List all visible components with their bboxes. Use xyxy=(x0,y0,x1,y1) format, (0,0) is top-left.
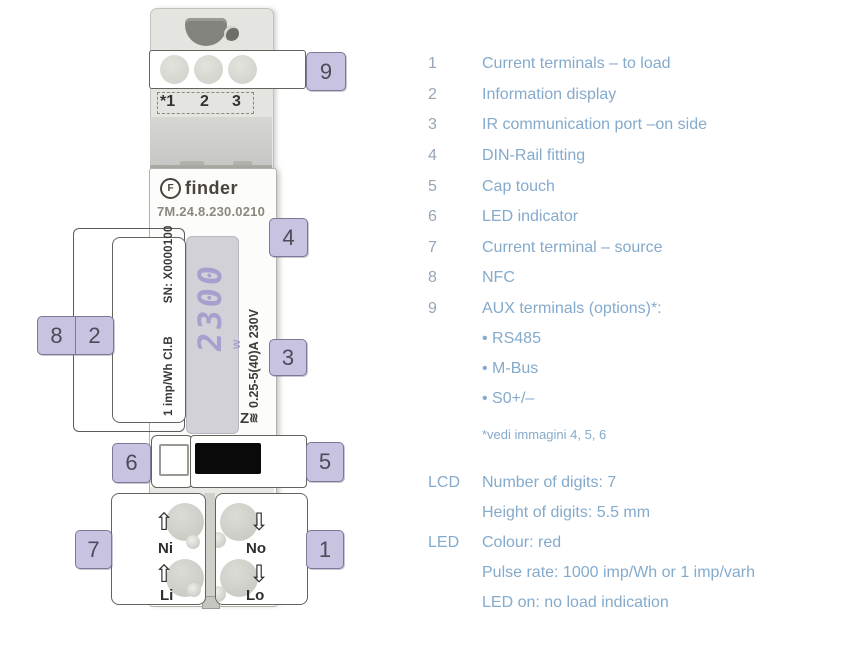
legend-item: 3 IR communication port –on side xyxy=(428,110,848,141)
legend-item: 2 Information display xyxy=(428,80,848,111)
legend-item: 5 Cap touch xyxy=(428,171,848,202)
flow-up-icon: ⇧ xyxy=(154,512,174,534)
callout-2: 2 xyxy=(76,317,113,354)
aux-terminal-number-1: *1 xyxy=(160,93,175,111)
terminal-screw xyxy=(186,535,200,549)
legend-label: NFC xyxy=(482,269,515,287)
device-top-screw-icon xyxy=(224,26,239,41)
legend-item: 9 AUX terminals (options)*: xyxy=(428,294,848,325)
spec-row: Height of digits: 5.5 mm xyxy=(428,498,848,528)
callout-4: 4 xyxy=(269,218,308,257)
legend-number: 8 xyxy=(428,269,482,287)
lcd-reading: 2300 xyxy=(191,261,229,354)
ir-waves-icon: ≋ xyxy=(246,413,262,424)
spec-text: Colour: red xyxy=(482,534,561,552)
legend-label: Current terminals – to load xyxy=(482,55,671,73)
legend-label: Cap touch xyxy=(482,178,555,196)
led-indicator-highlight xyxy=(151,435,193,488)
brand-row: F finder xyxy=(160,178,264,198)
aux-option-rs485: • RS485 xyxy=(428,324,848,354)
legend-label: Information display xyxy=(482,86,616,104)
legend-number: 7 xyxy=(428,239,482,257)
spec-label: LCD xyxy=(428,474,482,492)
legend-item: 8 NFC xyxy=(428,263,848,294)
legend-label: AUX terminals (options)*: xyxy=(482,300,662,318)
aux-option-s0: • S0+/– xyxy=(428,384,848,414)
spec-text: Number of digits: 7 xyxy=(482,474,616,492)
legend: 1 Current terminals – to load 2 Informat… xyxy=(428,49,848,618)
pulse-class-label: 1 imp/Wh Cl.B xyxy=(163,336,175,416)
legend-number: 6 xyxy=(428,208,482,226)
terminal-label-no: No xyxy=(246,540,266,557)
meter-side-printing: 1 imp/Wh Cl.B SN: X0000100 xyxy=(163,246,175,416)
aux-option-mbus: • M-Bus xyxy=(428,354,848,384)
spec-row: Pulse rate: 1000 imp/Wh or 1 imp/varh xyxy=(428,558,848,588)
aux-terminal-hole xyxy=(228,55,257,84)
finder-logo-icon: F xyxy=(160,178,181,199)
legend-label: IR communication port –on side xyxy=(482,116,707,134)
callout-3: 3 xyxy=(269,339,307,376)
flow-up-icon: ⇧ xyxy=(154,564,174,586)
legend-item: 4 DIN-Rail fitting xyxy=(428,141,848,172)
spec-label: LED xyxy=(428,534,482,552)
terminal-label-ni: Ni xyxy=(158,540,173,557)
spec-text: LED on: no load indication xyxy=(482,594,669,612)
callout-9: 9 xyxy=(306,52,346,91)
callout-8-2: 8 2 xyxy=(37,316,114,355)
ir-port-icon: Z ≋ xyxy=(240,407,266,429)
legend-label: LED indicator xyxy=(482,208,578,226)
legend-number: 3 xyxy=(428,116,482,134)
legend-number: 9 xyxy=(428,300,482,318)
spec-text: Height of digits: 5.5 mm xyxy=(482,504,650,522)
terminal-screw xyxy=(215,586,226,602)
flow-down-icon: ⇩ xyxy=(249,512,269,534)
rating-label: 0.25-5(40)A 230V xyxy=(247,308,261,408)
cap-touch-pad xyxy=(195,443,261,474)
callout-8: 8 xyxy=(38,317,76,354)
legend-label: Current terminal – source xyxy=(482,239,663,257)
aux-terminal-hole xyxy=(160,55,189,84)
energy-meter-figure: F finder 7M.24.8.230.0210 *1 2 3 1 imp/W… xyxy=(0,0,862,667)
terminal-screw xyxy=(187,583,201,597)
footnote: *vedi immagini 4, 5, 6 xyxy=(428,422,848,447)
source-terminal-cover: ⇧ Ni ⇧ Li xyxy=(111,493,206,605)
aux-terminals-highlight xyxy=(149,50,306,89)
led-indicator xyxy=(159,444,189,476)
spec-list: LCD Number of digits: 7 Height of digits… xyxy=(428,468,848,618)
serial-number-label: SN: X0000100 xyxy=(163,225,175,303)
aux-terminal-number-3: 3 xyxy=(232,93,241,111)
cap-touch-highlight xyxy=(190,435,307,488)
legend-item: 7 Current terminal – source xyxy=(428,233,848,264)
spec-row: LED on: no load indication xyxy=(428,588,848,618)
spec-text: Pulse rate: 1000 imp/Wh or 1 imp/varh xyxy=(482,564,755,582)
callout-7: 7 xyxy=(75,530,112,569)
spec-row: LCD Number of digits: 7 xyxy=(428,468,848,498)
load-terminal-cover: ⇩ No ⇩ Lo xyxy=(215,493,308,605)
terminal-label-li: Li xyxy=(160,587,173,604)
aux-terminal-number-2: 2 xyxy=(200,93,209,111)
lcd-unit: w xyxy=(229,340,243,349)
legend-number: 1 xyxy=(428,55,482,73)
terminal-label-lo: Lo xyxy=(246,587,264,604)
aux-terminal-hole xyxy=(194,55,223,84)
terminal-screw xyxy=(215,532,226,548)
legend-item: 6 LED indicator xyxy=(428,202,848,233)
device-din-clip-area xyxy=(150,117,272,166)
legend-item: 1 Current terminals – to load xyxy=(428,49,848,80)
legend-number: 5 xyxy=(428,178,482,196)
lcd-reading-wrap: 2300w xyxy=(191,252,231,352)
model-number: 7M.24.8.230.0210 xyxy=(157,204,267,219)
callout-5: 5 xyxy=(306,442,344,482)
callout-6: 6 xyxy=(112,443,151,483)
flow-down-icon: ⇩ xyxy=(249,564,269,586)
legend-number: 4 xyxy=(428,147,482,165)
display-highlight: 1 imp/Wh Cl.B SN: X0000100 xyxy=(112,237,186,423)
legend-label: DIN-Rail fitting xyxy=(482,147,585,165)
spec-row: LED Colour: red xyxy=(428,528,848,558)
callout-1: 1 xyxy=(306,530,344,569)
brand-name: finder xyxy=(185,178,238,199)
legend-number: 2 xyxy=(428,86,482,104)
